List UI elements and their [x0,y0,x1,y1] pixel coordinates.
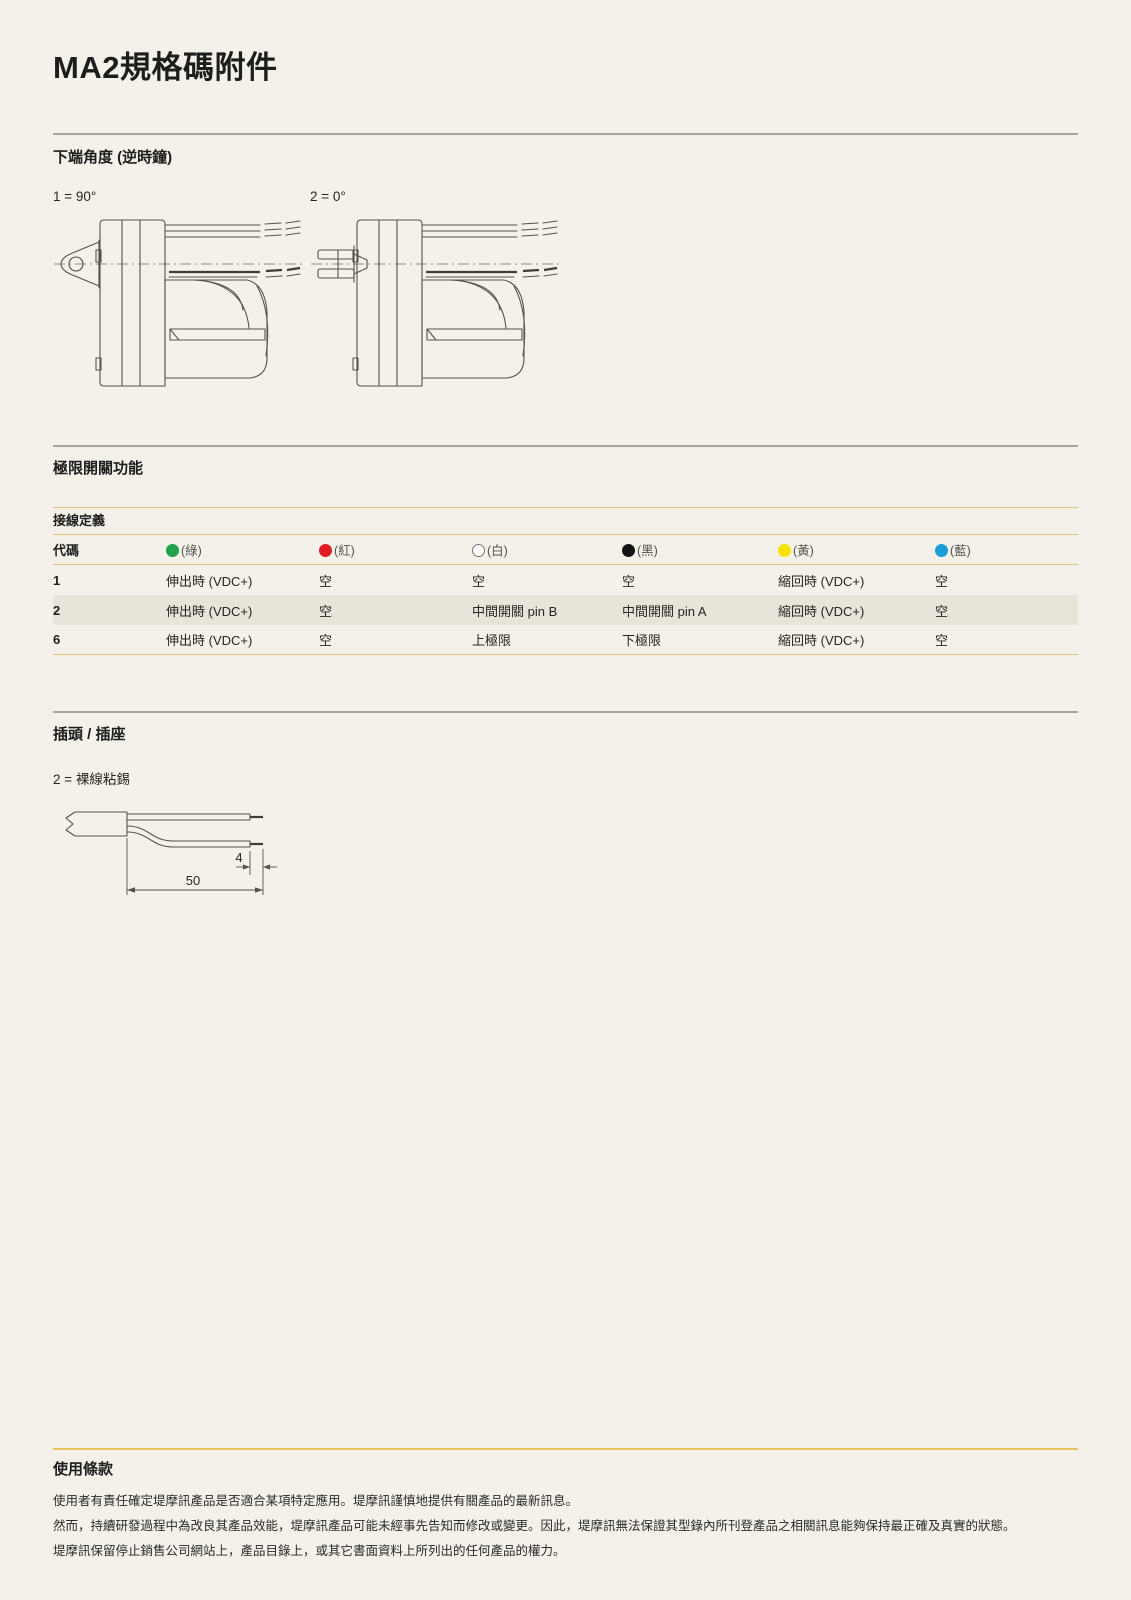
figure-label: 2 = 0° [310,188,567,206]
wire-header-yellow: (黃) [778,540,935,559]
bare-wire-diagram-icon: 4 50 [53,795,293,900]
dim-label-4: 4 [235,850,242,865]
table-row: 2 伸出時 (VDC+) 空 中間開關 pin B 中間開關 pin A 縮回時… [53,595,1078,625]
table-cell: 空 [935,601,1078,620]
section-heading-limit-switch: 極限開關功能 [53,459,1078,479]
table-header-row: 代碼 (綠) (紅) (白) (黑) (黃) (藍) [53,535,1078,565]
wire-header-label: (黃) [793,544,814,558]
wire-header-label: (藍) [950,544,971,558]
terms-paragraph: 堤摩訊保留停止銷售公司網站上，產品目錄上，或其它書面資料上所列出的任何產品的權力… [53,1539,1078,1564]
green-dot-icon [166,544,179,557]
datasheet-page: MA2規格碼附件 下端角度 (逆時鐘) 1 = 90° [0,46,1131,1600]
table-cell: 上極限 [472,630,622,649]
figure-0deg: 2 = 0° [310,188,567,390]
code-column-header: 代碼 [53,540,166,559]
table-cell: 中間開關 pin B [472,601,622,620]
table-subheading: 接線定義 [53,508,1078,535]
terms-heading: 使用條款 [53,1460,1078,1480]
table-cell: 空 [319,630,472,649]
section-divider [53,711,1078,713]
black-dot-icon [622,544,635,557]
wire-header-label: (黑) [637,544,658,558]
figure-label: 1 = 90° [53,188,310,206]
wire-header-label: (白) [487,544,508,558]
white-dot-icon [472,544,485,557]
table-cell: 空 [622,571,778,590]
terms-paragraph: 使用者有責任確定堤摩訊產品是否適合某項特定應用。堤摩訊謹慎地提供有關產品的最新訊… [53,1489,1078,1514]
table-cell: 空 [935,571,1078,590]
table-row: 6 伸出時 (VDC+) 空 上極限 下極限 縮回時 (VDC+) 空 [53,625,1078,655]
terms-paragraph: 然而，持續研發過程中為改良其產品效能，堤摩訊產品可能未經事先告知而修改或變更。因… [53,1514,1078,1539]
table-cell: 空 [935,630,1078,649]
row-code: 2 [53,603,166,618]
table-cell: 空 [472,571,622,590]
wire-header-white: (白) [472,540,622,559]
section-divider [53,445,1078,447]
wire-header-red: (紅) [319,540,472,559]
section-heading-bottom-angle: 下端角度 (逆時鐘) [53,148,1078,168]
terms-body: 使用者有責任確定堤摩訊產品是否適合某項特定應用。堤摩訊謹慎地提供有關產品的最新訊… [53,1489,1078,1564]
table-cell: 伸出時 (VDC+) [166,571,319,590]
actuator-drawing-90-icon [53,210,303,390]
table-cell: 伸出時 (VDC+) [166,601,319,620]
table-cell: 縮回時 (VDC+) [778,601,935,620]
wire-header-green: (綠) [166,540,319,559]
section-divider [53,133,1078,135]
section-heading-plug: 插頭 / 插座 [53,725,1078,745]
actuator-figures: 1 = 90° [53,188,1078,390]
table-cell: 下極限 [622,630,778,649]
wire-header-label: (綠) [181,544,202,558]
blue-dot-icon [935,544,948,557]
row-code: 6 [53,632,166,647]
red-dot-icon [319,544,332,557]
figure-90deg: 1 = 90° [53,188,310,390]
dim-label-50: 50 [186,873,200,888]
table-row: 1 伸出時 (VDC+) 空 空 空 縮回時 (VDC+) 空 [53,565,1078,595]
plug-option-label: 2 = 裸線粘錫 [53,771,1078,789]
table-cell: 空 [319,601,472,620]
terms-divider [53,1448,1078,1450]
row-code: 1 [53,573,166,588]
page-title: MA2規格碼附件 [53,46,1078,90]
table-cell: 空 [319,571,472,590]
wire-header-black: (黑) [622,540,778,559]
wiring-table: 接線定義 代碼 (綠) (紅) (白) (黑) (黃) (藍) 1 [53,507,1078,655]
wire-header-blue: (藍) [935,540,1078,559]
table-cell: 縮回時 (VDC+) [778,630,935,649]
wire-header-label: (紅) [334,544,355,558]
table-cell: 伸出時 (VDC+) [166,630,319,649]
actuator-drawing-0-icon [310,210,560,390]
table-cell: 縮回時 (VDC+) [778,571,935,590]
table-cell: 中間開關 pin A [622,601,778,620]
yellow-dot-icon [778,544,791,557]
